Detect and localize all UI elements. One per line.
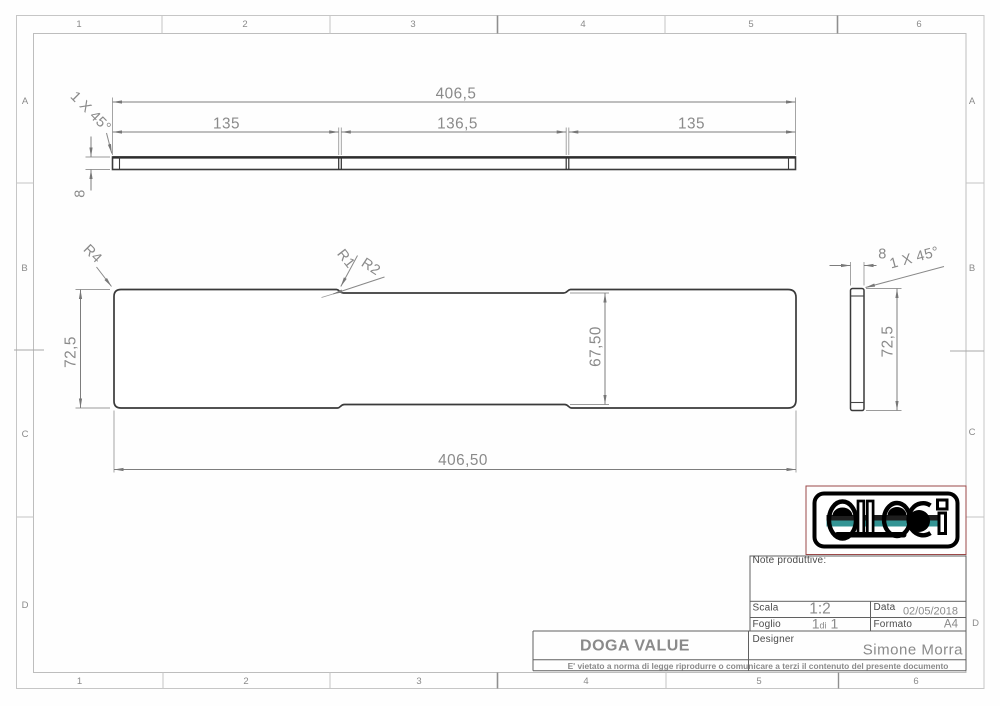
- svg-text:Note produttive:: Note produttive:: [753, 555, 827, 566]
- svg-text:A4: A4: [944, 619, 959, 631]
- svg-text:6: 6: [916, 19, 921, 30]
- svg-text:1: 1: [77, 676, 82, 687]
- svg-text:C: C: [969, 427, 976, 438]
- svg-text:72,5: 72,5: [63, 336, 80, 368]
- svg-text:135: 135: [213, 116, 240, 133]
- svg-text:3: 3: [416, 676, 421, 687]
- svg-text:A: A: [969, 96, 976, 107]
- svg-text:Formato: Formato: [874, 619, 913, 630]
- svg-text:135: 135: [678, 116, 705, 133]
- svg-text:5: 5: [748, 19, 753, 30]
- svg-text:2: 2: [243, 676, 248, 687]
- svg-text:Simone Morra: Simone Morra: [863, 642, 963, 659]
- svg-text:8: 8: [73, 189, 89, 197]
- svg-text:B: B: [21, 263, 27, 274]
- svg-text:4: 4: [583, 676, 588, 687]
- svg-text:2: 2: [242, 19, 247, 30]
- svg-text:1: 1: [76, 19, 81, 30]
- svg-text:02/05/2018: 02/05/2018: [903, 606, 958, 618]
- svg-text:Data: Data: [874, 602, 896, 613]
- svg-text:8: 8: [878, 247, 886, 263]
- svg-text:6: 6: [913, 676, 918, 687]
- svg-text:D: D: [972, 618, 979, 629]
- svg-text:4: 4: [580, 19, 585, 30]
- svg-text:E' vietato a norma di legge ri: E' vietato a norma di legge riprodurre o…: [568, 661, 949, 671]
- svg-text:C: C: [22, 429, 29, 440]
- svg-text:136,5: 136,5: [437, 116, 478, 133]
- svg-text:3: 3: [410, 19, 415, 30]
- svg-text:Foglio: Foglio: [753, 619, 782, 630]
- svg-text:406,5: 406,5: [436, 86, 477, 103]
- svg-text:406,50: 406,50: [438, 452, 488, 469]
- svg-text:DOGA VALUE: DOGA VALUE: [580, 638, 690, 655]
- svg-text:5: 5: [756, 676, 761, 687]
- svg-text:Designer: Designer: [753, 634, 795, 645]
- svg-text:D: D: [22, 600, 29, 611]
- svg-text:72,5: 72,5: [880, 326, 897, 358]
- svg-text:A: A: [22, 96, 29, 107]
- svg-text:B: B: [969, 263, 975, 274]
- svg-text:Scala: Scala: [753, 603, 779, 614]
- svg-text:67,50: 67,50: [588, 326, 605, 367]
